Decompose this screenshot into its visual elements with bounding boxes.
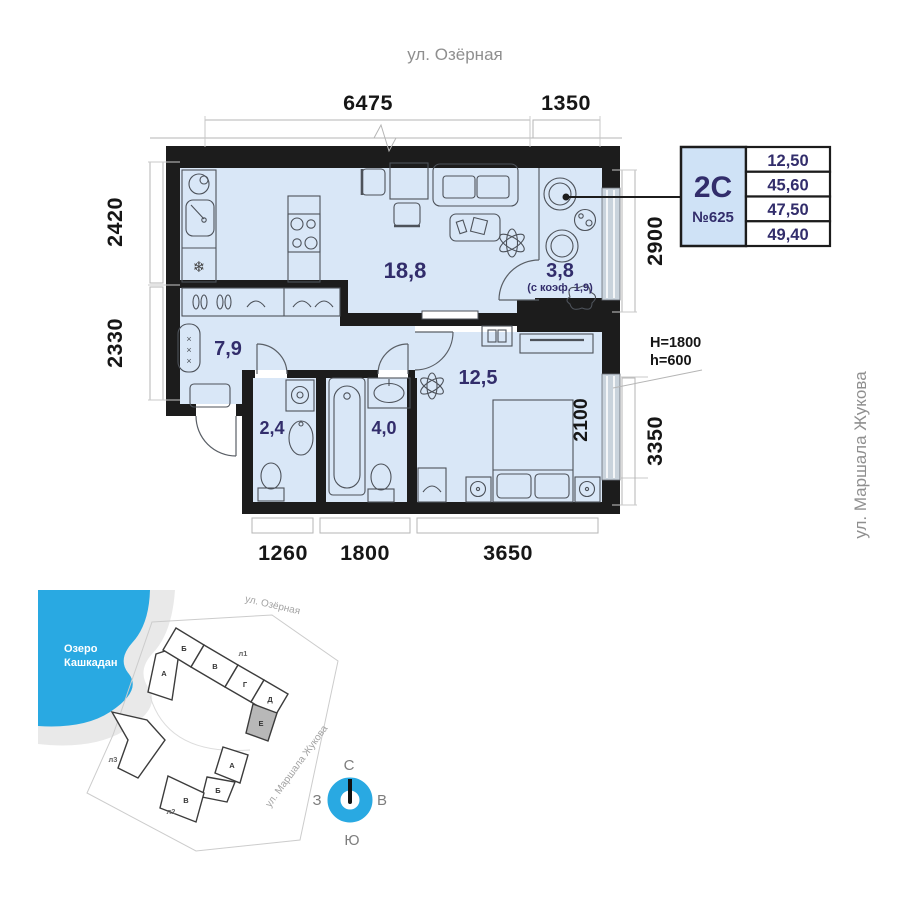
area-bathroom: 4,0 — [371, 418, 396, 438]
window-height-note: H=1800 — [650, 335, 701, 351]
entrance-door — [196, 416, 236, 456]
area-balcony: 3,8 — [546, 260, 574, 282]
floorplan-svg: ул. Озёрная ул. Маршала Жукова — [0, 0, 900, 900]
unit-number: №625 — [692, 209, 734, 226]
area-living: 18,8 — [384, 258, 427, 283]
compass-west: З — [312, 792, 321, 809]
unit-area-3: 47,50 — [767, 201, 808, 219]
map-label-l2: л2 — [167, 807, 176, 816]
dim-bedroom-window: 2100 — [570, 398, 592, 442]
svg-text:×: × — [186, 345, 191, 355]
lake-name-line1: Озеро — [64, 643, 98, 655]
map-label-a2: А — [229, 761, 235, 770]
map-block-l3 — [112, 712, 165, 778]
svg-text:×: × — [186, 356, 191, 366]
window-note-leader — [613, 370, 702, 388]
dim-right-2: 3350 — [643, 416, 667, 466]
bedroom-window — [602, 374, 648, 480]
compass-needle-dot — [348, 800, 352, 804]
map-label-d: Д — [267, 695, 273, 704]
map-label-b: Б — [181, 644, 187, 653]
dim-left-1: 2420 — [103, 197, 127, 247]
stylobate-outline — [150, 696, 250, 751]
dim-top-1: 6475 — [343, 91, 393, 115]
unit-card-leader-dot — [563, 194, 570, 201]
area-hall: 7,9 — [214, 338, 242, 360]
area-wc: 2,4 — [259, 418, 284, 438]
area-balcony-note: (с коэф. 1,9) — [527, 282, 593, 294]
compass-north: С — [344, 757, 355, 774]
map-label-l3: л3 — [109, 755, 118, 764]
svg-text:×: × — [186, 334, 191, 344]
unit-area-4: 49,40 — [767, 226, 808, 244]
street-label-top: ул. Озёрная — [407, 45, 502, 64]
site-map: Озеро Кашкадан ул. Озёрная ул. Маршала Ж… — [38, 590, 338, 851]
dim-bottom-2: 1800 — [340, 541, 390, 565]
tv-icon-living — [422, 311, 478, 319]
map-label-a: А — [161, 669, 167, 678]
unit-area-2: 45,60 — [767, 177, 808, 195]
balcony-window — [602, 188, 620, 300]
compass-rose: С Ю З В — [312, 757, 387, 849]
map-street-top: ул. Озёрная — [244, 594, 301, 617]
dim-left-2: 2330 — [103, 318, 127, 368]
map-label-b2: Б — [215, 786, 221, 795]
window-sill-note: h=600 — [650, 353, 692, 369]
floorplan-sheet: ул. Озёрная ул. Маршала Жукова — [0, 0, 900, 900]
fridge-icon: ❄ — [193, 259, 206, 276]
dim-top-2: 1350 — [541, 91, 591, 115]
map-label-g: Г — [243, 680, 248, 689]
street-label-right: ул. Маршала Жукова — [851, 371, 870, 539]
unit-area-1: 12,50 — [767, 152, 808, 170]
map-label-e: Е — [258, 719, 263, 728]
area-bedroom: 12,5 — [459, 367, 498, 389]
compass-east: В — [377, 792, 387, 809]
lake-name-line2: Кашкадан — [64, 657, 118, 669]
dim-bottom-1: 1260 — [258, 541, 308, 565]
dim-right-1: 2900 — [643, 216, 667, 266]
map-label-l1: л1 — [239, 649, 248, 658]
unit-type: 2С — [694, 171, 732, 204]
map-label-v: В — [212, 662, 218, 671]
dim-bottom-3: 3650 — [483, 541, 533, 565]
map-label-v2: В — [183, 796, 189, 805]
compass-south: Ю — [344, 832, 359, 849]
